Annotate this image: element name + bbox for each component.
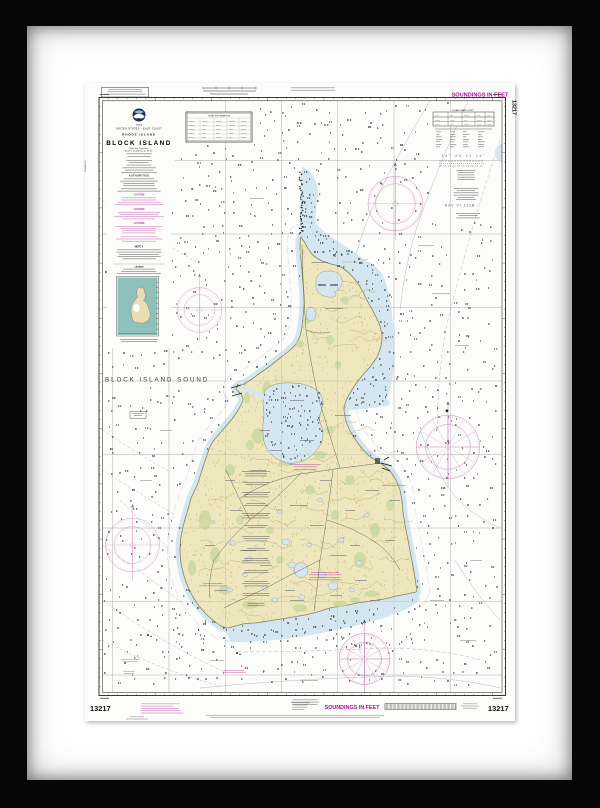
svg-text:NOAA: NOAA [136,124,143,127]
svg-text:13217: 13217 [488,704,509,713]
svg-text:BLOCK ISLAND: BLOCK ISLAND [106,140,172,147]
svg-text:NOAA CHART 13217: NOAA CHART 13217 [453,109,475,112]
svg-text:NAV VI 111B: NAV VI 111B [445,204,476,208]
svg-text:LEGEND: LEGEND [134,266,144,268]
svg-text:CAUTION: CAUTION [134,194,145,197]
svg-text:CAUTION: CAUTION [134,222,145,225]
svg-text:13217: 13217 [90,704,111,713]
svg-text:Scale 1:15,000 at Lat. 41°11': Scale 1:15,000 at Lat. 41°11' [125,149,153,152]
svg-text:SOUNDINGS IN FEET: SOUNDINGS IN FEET [452,93,509,99]
svg-text:RHODE ISLAND: RHODE ISLAND [122,132,156,136]
svg-text:13217: 13217 [511,100,517,115]
svg-text:14° 25 11 24°: 14° 25 11 24° [441,154,486,158]
svg-text:NOAA NOS: NOAA NOS [84,160,87,172]
svg-text:UNITED STATES - EAST COAST: UNITED STATES - EAST COAST [116,127,162,130]
svg-text:SOUNDINGS IN FEET: SOUNDINGS IN FEET [325,705,381,711]
svg-text:BLOCK ISLAND SOUND: BLOCK ISLAND SOUND [105,377,209,384]
svg-text:NOTE A: NOTE A [135,246,144,249]
svg-text:AUTHORITIES: AUTHORITIES [129,175,150,178]
svg-text:TIDAL INFORMATION: TIDAL INFORMATION [208,115,230,118]
svg-text:Mercator Projection: Mercator Projection [130,147,150,150]
svg-text:CAUTION: CAUTION [134,208,145,211]
